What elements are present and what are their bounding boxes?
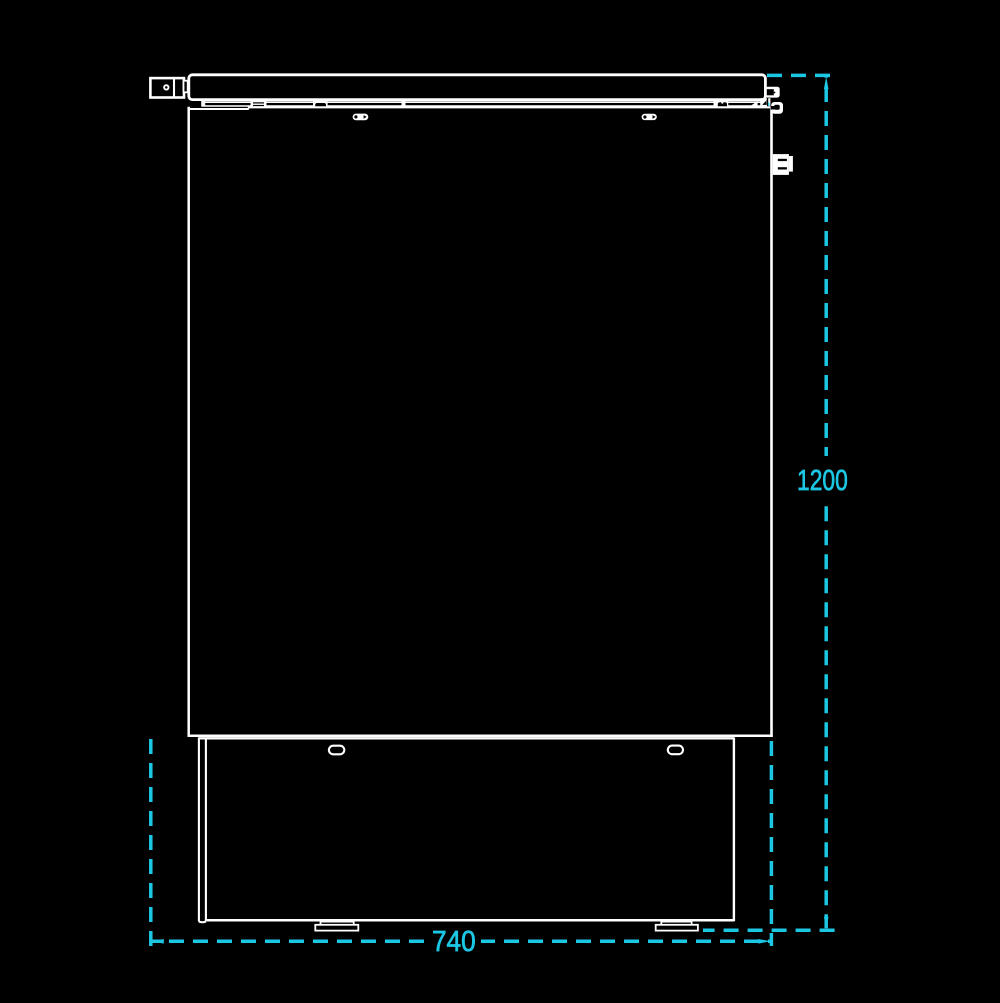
svg-text:740: 740 [432,925,476,957]
svg-text:1200: 1200 [797,466,848,497]
